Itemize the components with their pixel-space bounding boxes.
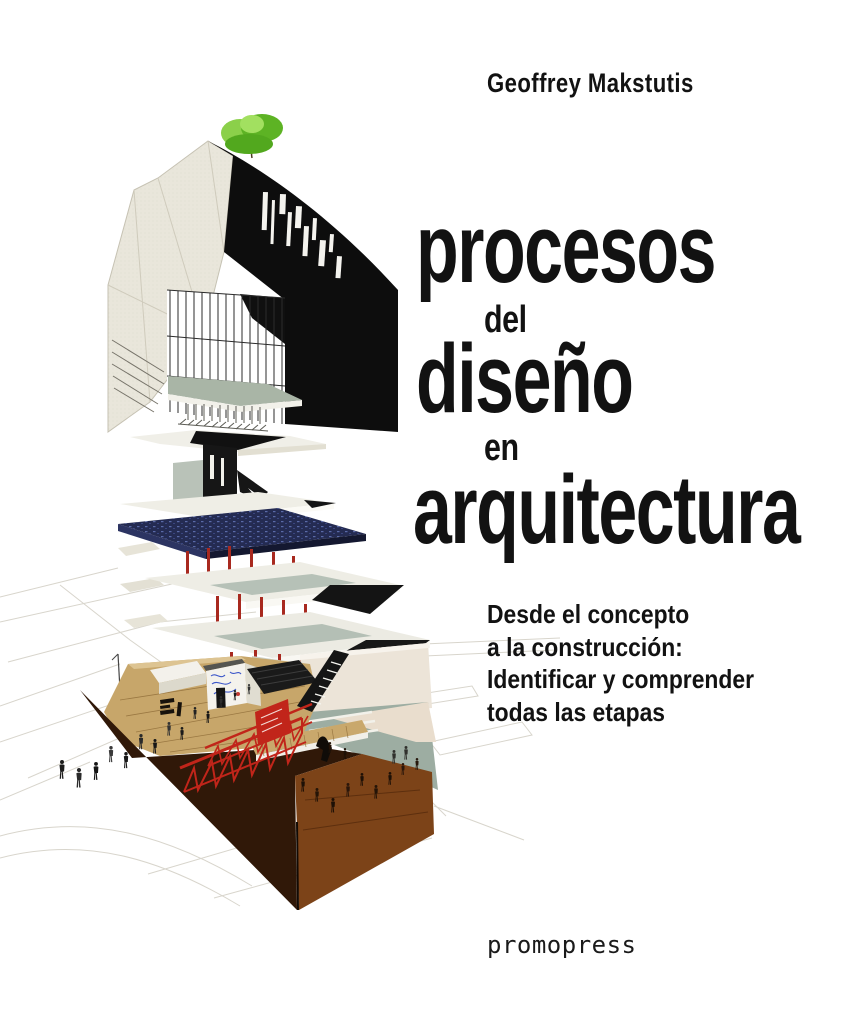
building-massing — [108, 114, 398, 432]
graffiti-kiosk — [203, 659, 261, 710]
tree-icon — [221, 114, 283, 158]
subtitle-line: a la construcción: — [487, 631, 754, 664]
subtitle-line: todas las etapas — [487, 696, 754, 729]
author-name: Geoffrey Makstutis — [487, 70, 694, 97]
book-cover: Geoffrey Makstutis procesos del diseño e… — [0, 0, 861, 1024]
subtitle-line: Identificar y comprender — [487, 663, 754, 696]
title-line-procesos: procesos — [416, 200, 715, 297]
title-line-arquitectura: arquitectura — [413, 461, 799, 558]
subtitle: Desde el concepto a la construcción: Ide… — [487, 598, 754, 728]
title-line-diseno: diseño — [416, 330, 632, 427]
subtitle-line: Desde el concepto — [487, 598, 754, 631]
publisher-logo: promopress — [487, 933, 637, 957]
construction-site — [80, 643, 438, 910]
